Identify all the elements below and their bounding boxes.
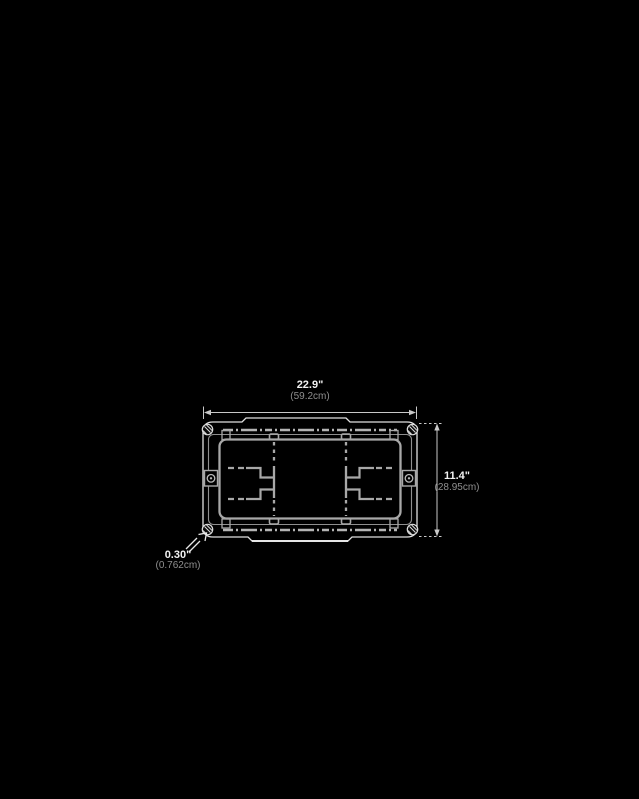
right-screw-icon [403, 471, 416, 487]
edge-bridge-tabs [222, 431, 398, 529]
latch-step-details [228, 468, 392, 499]
case-outline [203, 418, 417, 541]
height-arrow-up [434, 424, 439, 431]
lid-recess-outline [220, 440, 401, 519]
width-label-inches: 22.9" [250, 379, 370, 392]
width-label-metric: (59.2cm) [250, 391, 370, 403]
divider-end-tabs [270, 434, 351, 524]
height-label-metric: (28.95cm) [415, 482, 499, 494]
left-screw-icon [205, 471, 218, 487]
corner-foot-bottom-right [407, 524, 417, 534]
width-arrow-right [409, 410, 416, 415]
case-inner-border [209, 435, 412, 525]
divider-lines [274, 442, 346, 516]
diagram-canvas: 22.9" (59.2cm) 11.4" (28.95cm) 0.30" (0.… [0, 0, 639, 799]
foot-label-metric: (0.762cm) [137, 560, 219, 572]
corner-foot-top-left [202, 424, 212, 434]
width-dimension-line [204, 407, 417, 420]
width-arrow-left [204, 410, 211, 415]
height-label-inches: 11.4" [417, 470, 497, 483]
height-arrow-down [434, 530, 439, 537]
corner-foot-top-right [407, 424, 417, 434]
